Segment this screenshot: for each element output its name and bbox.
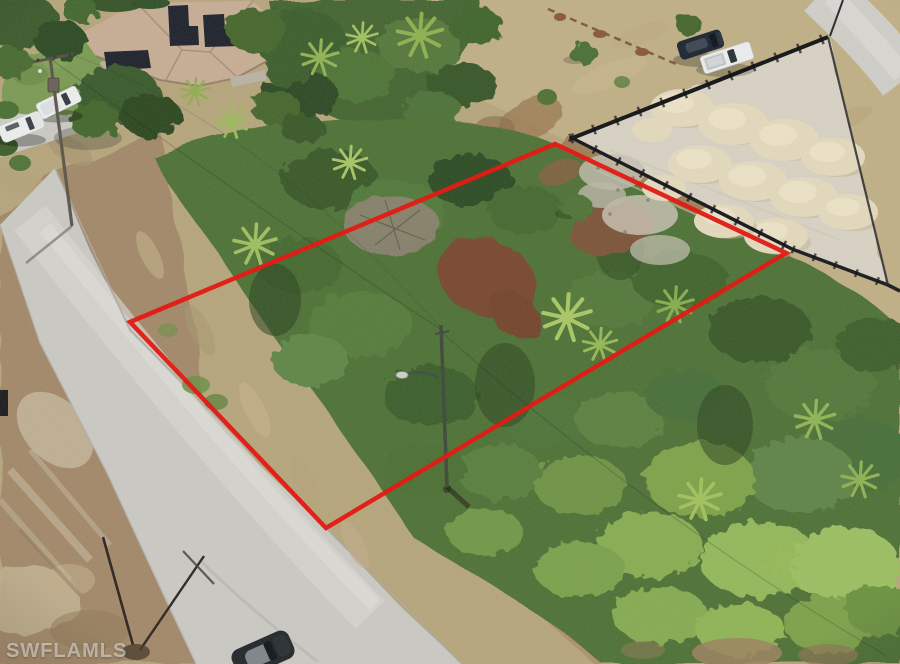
vignette [0, 0, 900, 664]
mls-watermark: SWFLAMLS [6, 640, 127, 663]
aerial-photo-vacant-lot: SWFLAMLS [0, 0, 900, 664]
